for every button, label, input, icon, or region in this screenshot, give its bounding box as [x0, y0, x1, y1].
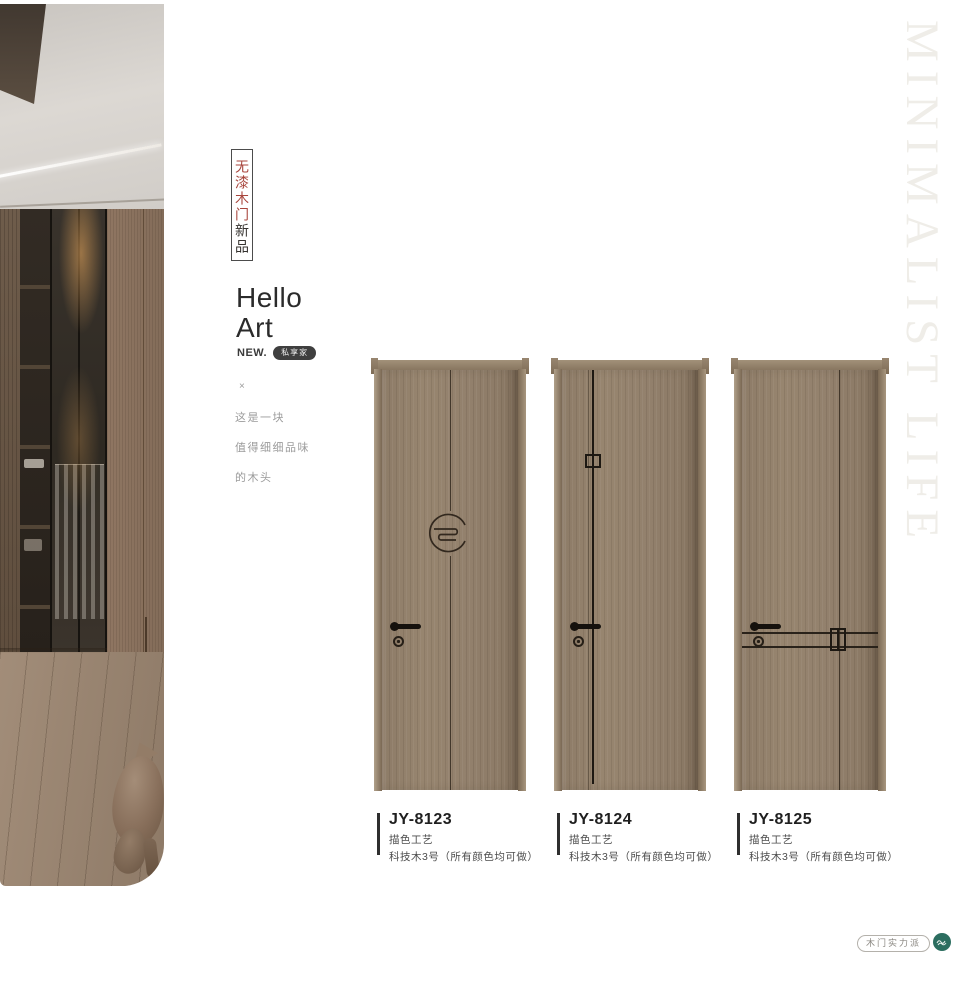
- wardrobe-glass-door: [50, 209, 107, 652]
- lock-rose: [753, 636, 764, 647]
- floor-shadow: [0, 648, 107, 653]
- door-handle: [750, 621, 792, 653]
- door-frame-jamb-right: [698, 369, 706, 791]
- black-inlay-line: [592, 370, 594, 784]
- door-image-jy-8125: [734, 357, 886, 793]
- interior-photo: [0, 4, 164, 886]
- vertical-tag-dark-text: 新品: [234, 223, 250, 255]
- product-label-jy-8123: JY-8123 描色工艺 科技木3号（所有颜色均可做）: [377, 811, 552, 864]
- label-text: JY-8125 描色工艺 科技木3号（所有颜色均可做）: [749, 811, 898, 864]
- logo-wave-icon: [936, 937, 948, 947]
- page-title: Hello Art: [236, 283, 302, 343]
- door-leaf: [562, 370, 698, 790]
- brand-circle-logo-icon: [933, 933, 951, 951]
- center-groove-top: [450, 370, 451, 511]
- door-frame-jamb-right: [878, 369, 886, 791]
- wardrobe-wood-panel: [107, 209, 164, 714]
- title-line-2: Art: [236, 313, 302, 343]
- product-label-jy-8125: JY-8125 描色工艺 科技木3号（所有颜色均可做）: [737, 811, 912, 864]
- circle-cloud-emblem-icon: [425, 509, 473, 557]
- product-craft: 描色工艺: [389, 832, 538, 847]
- door-frame-lintel: [371, 360, 529, 370]
- asterisk-mark: ×: [239, 381, 245, 392]
- shelf-item: [24, 459, 44, 468]
- handle-lever: [752, 624, 781, 629]
- new-label: NEW.: [237, 347, 267, 359]
- new-badge: 私享家: [273, 346, 316, 360]
- footer-badge: 木门实力派: [857, 935, 930, 952]
- handle-lever: [392, 624, 421, 629]
- door-leaf: [382, 370, 518, 790]
- door-frame-jamb-left: [734, 369, 742, 791]
- label-text: JY-8123 描色工艺 科技木3号（所有颜色均可做）: [389, 811, 538, 864]
- door-handle: [570, 621, 612, 653]
- wardrobe-shelving: [20, 209, 50, 652]
- lock-rose: [573, 636, 584, 647]
- thin-groove-line: [588, 370, 589, 790]
- warm-light-glow: [52, 209, 105, 652]
- lock-rose: [393, 636, 404, 647]
- door-frame-lintel: [731, 360, 889, 370]
- product-craft: 描色工艺: [569, 832, 718, 847]
- product-material: 科技木3号（所有颜色均可做）: [749, 849, 898, 864]
- door-image-jy-8124: [554, 357, 706, 793]
- product-material: 科技木3号（所有颜色均可做）: [569, 849, 718, 864]
- product-material: 科技木3号（所有颜色均可做）: [389, 849, 538, 864]
- shelf-item: [24, 539, 42, 551]
- animal-figurine: [103, 740, 164, 886]
- door-frame-jamb-left: [374, 369, 382, 791]
- product-craft: 描色工艺: [749, 832, 898, 847]
- door-frame-lintel: [551, 360, 709, 370]
- label-accent-bar: [377, 813, 380, 855]
- vertical-tag-box: 无漆木门新品: [231, 149, 253, 261]
- door-leaf: [742, 370, 878, 790]
- handle-lever: [572, 624, 601, 629]
- vertical-tag-red-text: 无漆木门: [234, 159, 250, 223]
- label-text: JY-8124 描色工艺 科技木3号（所有颜色均可做）: [569, 811, 718, 864]
- product-model: JY-8125: [749, 811, 898, 829]
- tagline-line-3: 的木头: [235, 469, 310, 485]
- product-model: JY-8123: [389, 811, 538, 829]
- door-frame-jamb-right: [518, 369, 526, 791]
- label-accent-bar: [557, 813, 560, 855]
- door-handle: [390, 621, 432, 653]
- product-label-jy-8124: JY-8124 描色工艺 科技木3号（所有颜色均可做）: [557, 811, 732, 864]
- right-groove-line: [839, 370, 840, 790]
- title-line-1: Hello: [236, 283, 302, 313]
- square-emblem-icon: [585, 454, 601, 468]
- figurine-leg: [143, 837, 161, 878]
- product-model: JY-8124: [569, 811, 718, 829]
- square-emblem-icon: [830, 628, 846, 651]
- catalog-page: 无漆木门新品 Hello Art NEW. 私享家 × 这是一块 值得细细品味 …: [0, 0, 980, 999]
- label-accent-bar: [737, 813, 740, 855]
- door-image-jy-8123: [374, 357, 526, 793]
- new-row: NEW. 私享家: [237, 346, 316, 360]
- tagline: 这是一块 值得细细品味 的木头: [235, 409, 310, 499]
- tagline-line-1: 这是一块: [235, 409, 310, 425]
- wardrobe-left-panel: [0, 209, 20, 652]
- side-watermark-text: MINIMALIST LIFE: [895, 20, 949, 890]
- tagline-line-2: 值得细细品味: [235, 439, 310, 455]
- door-frame-jamb-left: [554, 369, 562, 791]
- center-groove-bottom: [450, 556, 451, 790]
- panel-seam: [143, 209, 144, 714]
